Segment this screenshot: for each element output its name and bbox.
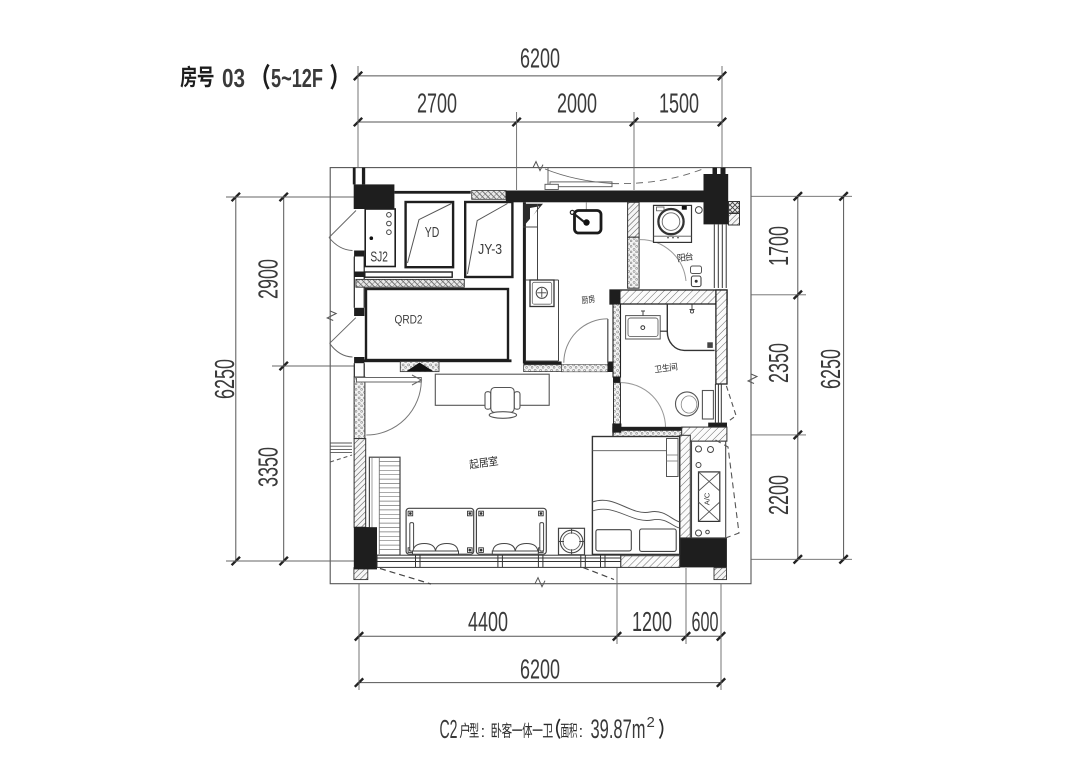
svg-text:2700: 2700 [417,88,457,119]
svg-text:1200: 1200 [632,606,672,637]
svg-text::: : [579,722,584,741]
svg-text:3350: 3350 [253,447,284,487]
svg-text:A/C: A/C [703,492,712,505]
svg-text:6200: 6200 [520,654,560,685]
svg-text:2350: 2350 [763,343,794,383]
svg-text:4400: 4400 [468,606,508,637]
svg-text:C2: C2 [440,714,458,744]
svg-text:39.87m: 39.87m [591,714,646,744]
svg-text:1500: 1500 [659,88,699,119]
svg-text:5~12F: 5~12F [271,63,323,93]
svg-text:2900: 2900 [253,259,284,299]
svg-text::: : [481,722,486,741]
svg-text:JY-3: JY-3 [478,241,502,258]
svg-text:QRD2: QRD2 [395,315,423,327]
svg-text:6250: 6250 [209,359,240,399]
svg-text:6250: 6250 [815,349,846,389]
svg-text:600: 600 [692,606,719,637]
svg-text:2: 2 [647,714,655,731]
svg-text:2200: 2200 [763,475,794,515]
svg-text:2000: 2000 [557,88,597,119]
svg-text:SJ2: SJ2 [370,249,388,265]
svg-text:03: 03 [222,63,245,93]
svg-text:YD: YD [425,224,440,241]
svg-text:6200: 6200 [520,43,560,74]
svg-text:1700: 1700 [763,226,794,266]
